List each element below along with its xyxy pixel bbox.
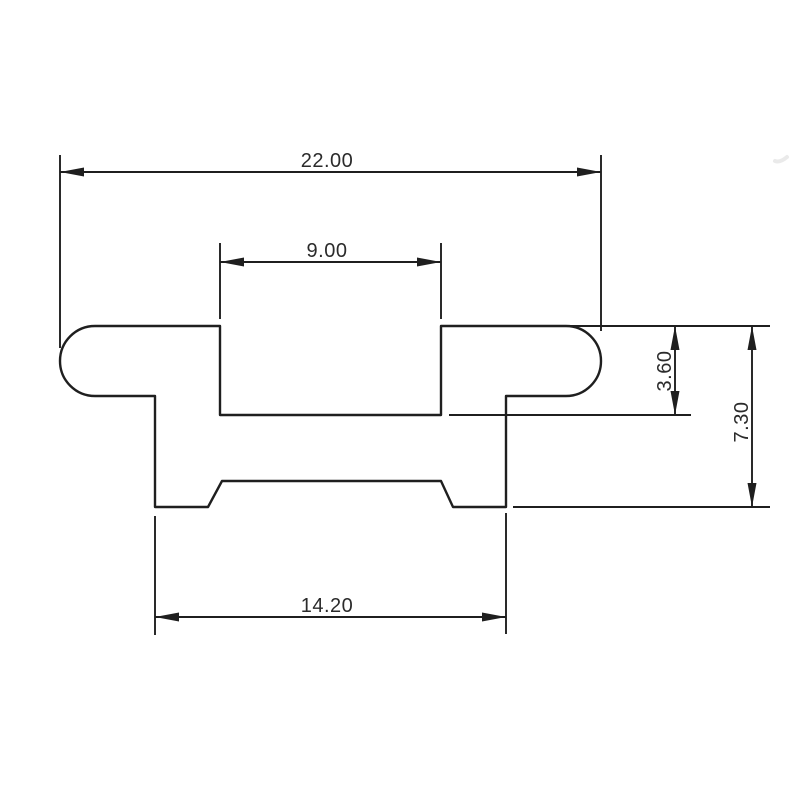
watermark-artifact — [775, 157, 787, 162]
arrowhead-right — [482, 613, 506, 622]
arrowhead-right — [577, 168, 601, 177]
dim-slot-width: 9.00 — [220, 240, 441, 319]
arrowhead-bottom — [748, 483, 757, 507]
dim-label-total-height: 7.30 — [731, 402, 753, 443]
dim-slot-depth: 3.60 — [654, 326, 680, 415]
dim-label-total-width: 22.00 — [301, 150, 354, 172]
arrowhead-top — [671, 326, 680, 350]
dim-label-slot-width: 9.00 — [307, 240, 348, 262]
dim-base-width: 14.20 — [155, 513, 506, 635]
arrowhead-left — [155, 613, 179, 622]
arrowhead-top — [748, 326, 757, 350]
profile-drawing: 22.00 9.00 3.60 7.30 — [0, 0, 800, 800]
dim-label-base-width: 14.20 — [301, 595, 354, 617]
arrowhead-left — [220, 258, 244, 267]
arrowhead-bottom — [671, 391, 680, 415]
arrowhead-right — [417, 258, 441, 267]
profile-outline — [60, 326, 601, 507]
dim-total-height: 7.30 — [731, 326, 757, 507]
arrowhead-left — [60, 168, 84, 177]
dim-label-slot-depth: 3.60 — [654, 351, 676, 392]
technical-drawing-canvas: 22.00 9.00 3.60 7.30 — [0, 0, 800, 800]
